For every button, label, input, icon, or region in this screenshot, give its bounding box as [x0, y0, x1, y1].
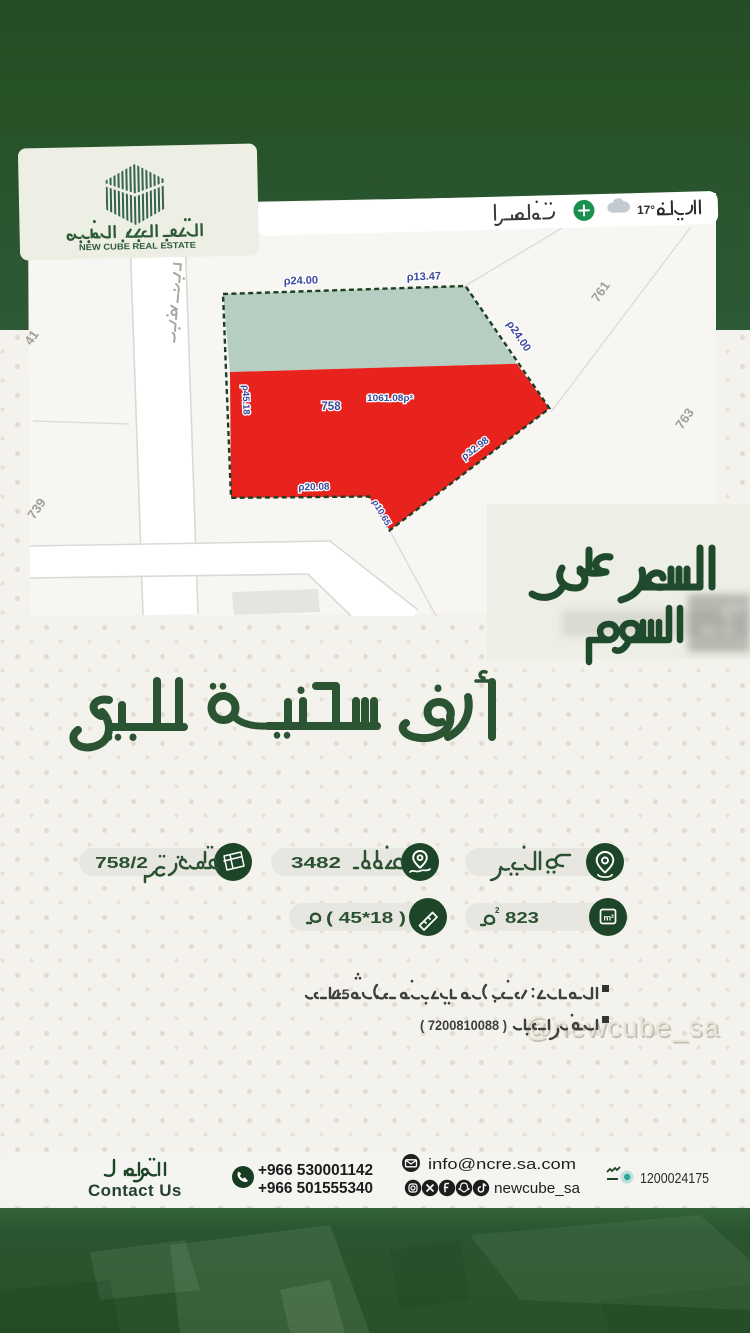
svg-text:ρ45.18: ρ45.18 — [239, 385, 251, 415]
svg-text:2: 2 — [495, 906, 500, 915]
svg-text:+966 501555340: +966 501555340 — [258, 1180, 373, 1197]
svg-text:ρ24.00: ρ24.00 — [284, 274, 319, 287]
svg-text:Contact Us: Contact Us — [88, 1181, 182, 1200]
svg-text:ρ13.47: ρ13.47 — [407, 270, 442, 283]
svg-text:15: 15 — [334, 986, 350, 1002]
svg-text:758/2: 758/2 — [95, 855, 148, 872]
svg-text:823: 823 — [505, 910, 539, 927]
svg-text:( 7200810088 ): ( 7200810088 ) — [420, 1017, 507, 1033]
svg-text:ρ20.08: ρ20.08 — [298, 482, 330, 494]
svg-text:+966 530001142: +966 530001142 — [258, 1162, 373, 1179]
svg-text:m²: m² — [604, 913, 615, 923]
svg-text:info@ncre.sa.com: info@ncre.sa.com — [428, 1156, 576, 1173]
svg-text:1200024175: 1200024175 — [640, 1171, 709, 1187]
svg-text:3482: 3482 — [291, 855, 341, 872]
svg-text:1061.08ρ²: 1061.08ρ² — [367, 393, 413, 403]
svg-text:758: 758 — [321, 401, 341, 413]
svg-text:( 45*18 ): ( 45*18 ) — [326, 910, 406, 927]
svg-text:17°: 17° — [637, 203, 656, 217]
svg-text:newcube_sa: newcube_sa — [494, 1181, 581, 1197]
